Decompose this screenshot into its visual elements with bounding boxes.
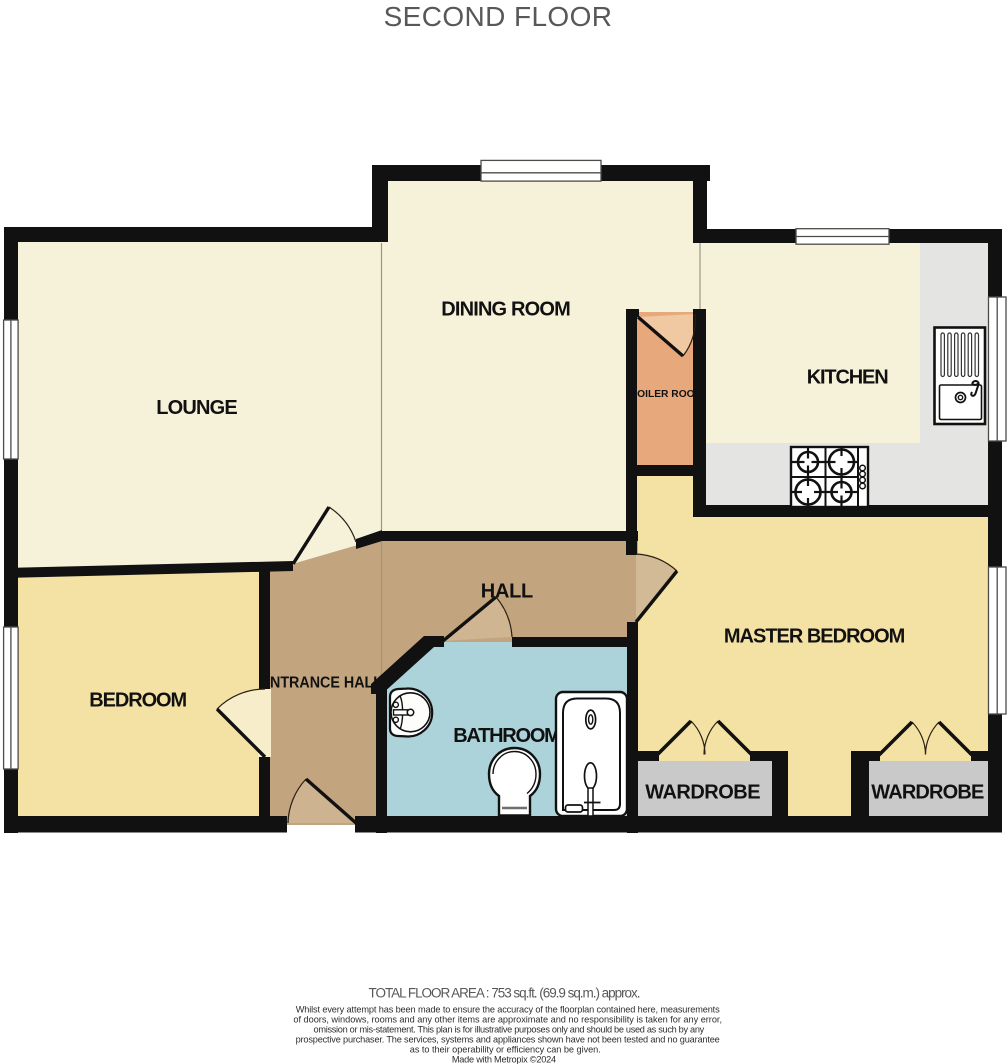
- svg-text:DINING ROOM: DINING ROOM: [441, 299, 571, 321]
- svg-text:BEDROOM: BEDROOM: [89, 689, 187, 711]
- svg-text:SECOND FLOOR: SECOND FLOOR: [384, 1, 613, 32]
- svg-text:Whilst every attempt has been: Whilst every attempt has been made to en…: [296, 1005, 720, 1015]
- svg-text:WARDROBE: WARDROBE: [645, 782, 760, 804]
- svg-text:omission or mis-statement. Thi: omission or mis-statement. This plan is …: [314, 1025, 705, 1035]
- svg-text:MASTER BEDROOM: MASTER BEDROOM: [724, 626, 905, 648]
- svg-text:prospective purchaser. The ser: prospective purchaser. The services, sys…: [296, 1035, 720, 1045]
- svg-text:HALL: HALL: [481, 581, 533, 603]
- svg-text:NTRANCE HALL: NTRANCE HALL: [270, 675, 382, 692]
- svg-text:LOUNGE: LOUNGE: [156, 397, 238, 419]
- svg-text:TOTAL FLOOR AREA : 753 sq.ft.: TOTAL FLOOR AREA : 753 sq.ft. (69.9 sq.m…: [369, 986, 641, 1001]
- svg-text:BATHROOM: BATHROOM: [453, 725, 561, 747]
- svg-text:as to their operability or eff: as to their operability or efficiency ca…: [410, 1045, 601, 1055]
- svg-text:KITCHEN: KITCHEN: [807, 366, 889, 388]
- svg-text:OILER ROO: OILER ROO: [637, 389, 695, 400]
- svg-text:of doors, windows, rooms and a: of doors, windows, rooms and any other i…: [293, 1015, 722, 1025]
- svg-text:Made with Metropix ©2024: Made with Metropix ©2024: [452, 1054, 556, 1064]
- svg-text:WARDROBE: WARDROBE: [871, 782, 984, 804]
